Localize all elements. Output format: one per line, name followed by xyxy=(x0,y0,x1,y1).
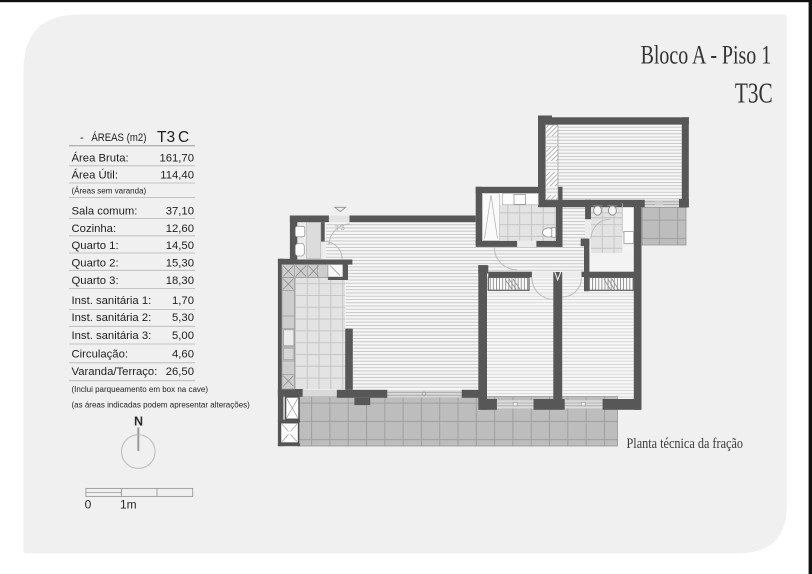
svg-text:-: - xyxy=(80,132,84,144)
svg-text:5,00: 5,00 xyxy=(172,330,194,342)
svg-text:Quarto 1:: Quarto 1: xyxy=(72,240,119,252)
svg-text:12,60: 12,60 xyxy=(166,223,194,235)
svg-text:5,30: 5,30 xyxy=(172,312,194,324)
svg-text:Planta técnica da fração: Planta técnica da fração xyxy=(627,436,744,452)
svg-text:Área Útil:: Área Útil: xyxy=(72,169,118,182)
svg-text:(as áreas indicadas podem apre: (as áreas indicadas podem apresentar alt… xyxy=(72,400,251,409)
svg-text:1,70: 1,70 xyxy=(172,295,194,307)
svg-text:C: C xyxy=(178,129,189,146)
svg-text:N: N xyxy=(134,415,143,429)
svg-text:Inst. sanitária 2:: Inst. sanitária 2: xyxy=(72,312,152,324)
svg-text:Quarto 2:: Quarto 2: xyxy=(72,257,119,269)
svg-text:114,40: 114,40 xyxy=(160,170,194,182)
svg-text:0: 0 xyxy=(85,498,92,512)
svg-text:161,70: 161,70 xyxy=(159,153,194,165)
svg-text:Inst. sanitária 1:: Inst. sanitária 1: xyxy=(72,295,152,307)
svg-text:Área Bruta:: Área Bruta: xyxy=(72,152,129,165)
svg-text:Bloco A - Piso 1: Bloco A - Piso 1 xyxy=(641,40,772,70)
svg-text:Cozinha:: Cozinha: xyxy=(72,223,117,235)
svg-text:4,60: 4,60 xyxy=(172,349,194,361)
svg-text:1m: 1m xyxy=(120,498,137,512)
svg-text:T3C: T3C xyxy=(735,79,773,110)
svg-text:ÁREAS (m2): ÁREAS (m2) xyxy=(91,131,146,144)
svg-text:Quarto 3:: Quarto 3: xyxy=(72,275,119,287)
svg-text:(Áreas sem varanda): (Áreas sem varanda) xyxy=(72,187,147,196)
svg-text:15,30: 15,30 xyxy=(166,257,194,269)
svg-text:14,50: 14,50 xyxy=(166,240,194,252)
svg-text:Inst. sanitária 3:: Inst. sanitária 3: xyxy=(72,330,152,342)
svg-text:Circulação:: Circulação: xyxy=(72,349,129,361)
svg-text:T3: T3 xyxy=(157,129,175,146)
svg-text:Sala comum:: Sala comum: xyxy=(72,206,138,218)
svg-text:Varanda/Terraço:: Varanda/Terraço: xyxy=(72,366,158,378)
svg-text:26,50: 26,50 xyxy=(166,366,194,378)
svg-text:37,10: 37,10 xyxy=(166,206,194,218)
svg-text:18,30: 18,30 xyxy=(166,275,194,287)
svg-text:(Inclui parqueamento em box na: (Inclui parqueamento em box na cave) xyxy=(72,385,209,394)
